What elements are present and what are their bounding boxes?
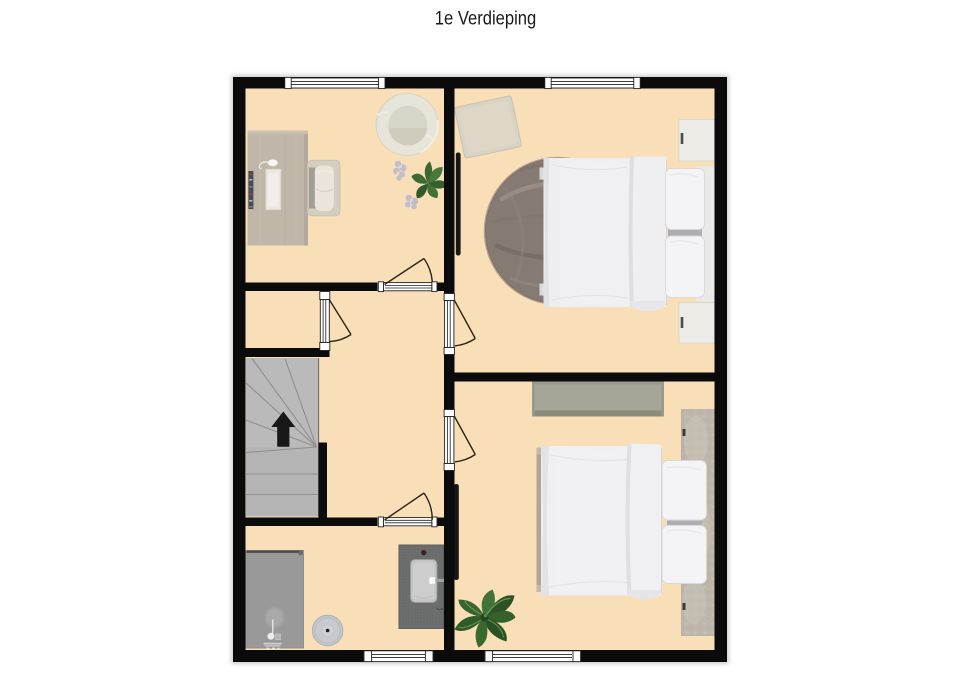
svg-text:1e Verdieping: 1e Verdieping [435,8,537,30]
